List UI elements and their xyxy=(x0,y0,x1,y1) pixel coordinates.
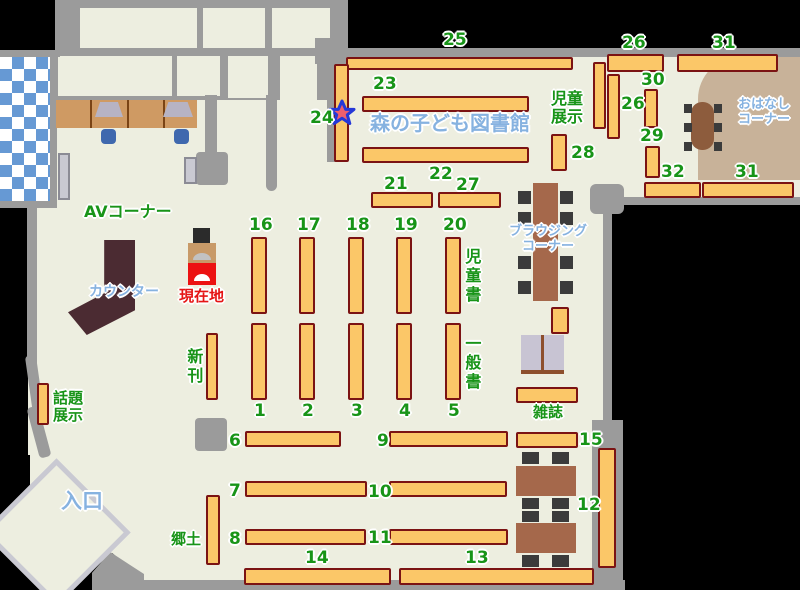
wall-pillar xyxy=(195,418,227,451)
entrance-label: 入口 xyxy=(61,489,103,513)
shelf-label-22: 22 xyxy=(429,166,453,183)
story-line1: おはなし xyxy=(733,98,795,113)
counter-label: カウンター xyxy=(89,284,159,300)
chair xyxy=(522,452,539,464)
wall-left xyxy=(27,203,37,363)
shelf-26-vertical xyxy=(593,62,606,129)
shelf-label-13: 13 xyxy=(465,550,489,567)
shelf-label-12: 12 xyxy=(577,497,601,514)
chair xyxy=(522,511,539,522)
local-history-label: 郷土 xyxy=(171,531,201,548)
wall-checker-right xyxy=(50,57,57,203)
shelf-30 xyxy=(644,89,658,128)
shelf-label-18: 18 xyxy=(346,217,370,234)
kiosk-slot xyxy=(194,274,210,281)
chair xyxy=(518,256,531,269)
shelf-14 xyxy=(244,568,391,585)
shelf-label-3: 3 xyxy=(351,403,363,420)
chair xyxy=(714,142,722,151)
chair xyxy=(518,281,531,294)
shelf-7 xyxy=(245,481,367,497)
kiosk-slot xyxy=(193,253,211,260)
chair xyxy=(560,256,573,269)
new-books-shelf xyxy=(206,333,218,400)
shelf-9 xyxy=(389,431,508,447)
shelf-label-4: 4 xyxy=(399,403,411,420)
magazines-label: 雑誌 xyxy=(533,404,563,421)
chair xyxy=(552,498,569,509)
av-desk-divider xyxy=(90,100,92,128)
shelf-6 xyxy=(245,431,341,447)
shelf-label-32: 32 xyxy=(661,164,685,181)
children-display-line2: 展示 xyxy=(551,108,583,126)
chair xyxy=(714,123,722,132)
wall-top-left xyxy=(0,50,60,57)
wall-children-bottom xyxy=(610,197,800,205)
shelf-5 xyxy=(445,323,461,400)
browsing-line2: コーナー xyxy=(503,240,593,255)
room-opening xyxy=(280,56,317,100)
browsing-corner-label: ブラウジング コーナー xyxy=(503,225,593,255)
shelf-label-23: 23 xyxy=(373,76,397,93)
wall-pillar xyxy=(196,152,228,185)
room xyxy=(228,56,268,98)
room xyxy=(177,56,220,96)
topic-display-label: 話題 展示 xyxy=(53,390,83,425)
shelf-19 xyxy=(396,237,412,314)
shelf-21 xyxy=(371,192,433,208)
shelf-31-top xyxy=(677,54,778,72)
shelf-2 xyxy=(299,323,315,400)
general-books-label: 一般書 xyxy=(462,335,480,392)
shelf-1 xyxy=(251,323,267,400)
newspaper-rack-divider xyxy=(541,335,544,374)
chair xyxy=(552,555,569,567)
room xyxy=(80,8,197,48)
wall-stub xyxy=(205,95,217,157)
new-books-label: 新刊 xyxy=(184,348,202,386)
shelf-label-25: 25 xyxy=(443,32,467,49)
shelf-label-21: 21 xyxy=(384,176,408,193)
shelf-23 xyxy=(362,96,529,112)
shelf-17 xyxy=(299,237,315,314)
shelf-label-17: 17 xyxy=(297,217,321,234)
shelf-28 xyxy=(551,134,567,171)
shelf-label-28: 28 xyxy=(571,145,595,162)
shelf-label-6: 6 xyxy=(229,433,241,450)
shelf-16 xyxy=(251,237,267,314)
door xyxy=(184,157,197,184)
shelf-18 xyxy=(348,237,364,314)
shelf-label-31-side: 31 xyxy=(735,164,759,181)
reading-table xyxy=(516,466,576,496)
wall-post xyxy=(315,38,348,64)
shelf-label-30: 30 xyxy=(641,72,665,89)
shelf-26-vertical xyxy=(607,74,620,139)
shelf-13 xyxy=(399,568,594,585)
checkered-entry-mat xyxy=(0,57,50,203)
shelf-label-1: 1 xyxy=(254,403,266,420)
shelf-label-5: 5 xyxy=(448,403,460,420)
shelf-label-9: 9 xyxy=(377,433,389,450)
shelf-31-bottom xyxy=(702,182,794,198)
chair xyxy=(101,129,116,144)
current-location-label: 現在地 xyxy=(179,289,224,304)
library-floor-map: 25 23 24 22 21 27 26 31 26 30 29 28 32 3… xyxy=(0,0,800,590)
story-table xyxy=(691,102,714,150)
story-corner-label: おはなし コーナー xyxy=(733,98,795,128)
room xyxy=(58,56,172,96)
shelf-label-16: 16 xyxy=(249,217,273,234)
shelf-label-2: 2 xyxy=(302,403,314,420)
chair xyxy=(552,511,569,522)
kiosk-top xyxy=(193,228,210,243)
story-line2: コーナー xyxy=(733,113,795,128)
chair xyxy=(684,142,692,151)
shelf-4 xyxy=(396,323,412,400)
shelf-label-14: 14 xyxy=(305,550,329,567)
wall-right xyxy=(603,205,612,425)
shelf-15 xyxy=(516,432,578,448)
topic-display-line1: 話題 xyxy=(53,390,83,407)
children-books-label: 児童書 xyxy=(462,248,480,305)
shelf-label-15: 15 xyxy=(579,432,603,449)
shelf-label-31-top: 31 xyxy=(712,35,736,52)
chair xyxy=(522,498,539,509)
browsing-line1: ブラウジング xyxy=(503,225,593,240)
shelf-label-29: 29 xyxy=(640,128,664,145)
shelf-10 xyxy=(389,481,507,497)
chair xyxy=(552,452,569,464)
shelf-3 xyxy=(348,323,364,400)
children-display-line1: 児童 xyxy=(551,90,583,108)
chair xyxy=(174,129,189,144)
shelf-22 xyxy=(362,147,529,163)
chair xyxy=(684,123,692,132)
reading-table xyxy=(516,523,576,553)
library-title: 森の子ども図書館 xyxy=(370,112,530,135)
shelf-label-19: 19 xyxy=(394,217,418,234)
shelf-label-11: 11 xyxy=(368,530,392,547)
shelf-label-27: 27 xyxy=(456,177,480,194)
shelf-20 xyxy=(445,237,461,314)
shelf-label-10: 10 xyxy=(368,484,392,501)
shelf-8 xyxy=(245,529,366,545)
local-history-shelf xyxy=(206,495,220,565)
shelf-29 xyxy=(645,146,660,178)
topic-display-shelf xyxy=(37,383,49,425)
topic-display-line2: 展示 xyxy=(53,407,83,424)
shelf-25 xyxy=(346,57,573,70)
shelf-label-26-top: 26 xyxy=(622,35,646,52)
chair xyxy=(714,104,722,113)
chair xyxy=(560,281,573,294)
children-display-label: 児童 展示 xyxy=(551,90,583,127)
pamphlet-shelf xyxy=(551,307,569,334)
chair xyxy=(684,104,692,113)
chair xyxy=(522,555,539,567)
av-desk-divider xyxy=(127,100,129,128)
shelf-32 xyxy=(644,182,701,198)
magazine-shelf xyxy=(516,387,578,403)
room xyxy=(203,8,265,48)
chair xyxy=(560,191,573,204)
shelf-label-7: 7 xyxy=(229,483,241,500)
av-corner-label: AVコーナー xyxy=(84,203,172,221)
wall-stub xyxy=(266,95,277,191)
shelf-11 xyxy=(389,529,508,545)
shelf-label-8: 8 xyxy=(229,531,241,548)
shelf-label-20: 20 xyxy=(443,217,467,234)
shelf-label-26-side: 26 xyxy=(621,96,645,113)
door xyxy=(58,153,70,200)
chair xyxy=(518,191,531,204)
shelf-label-24: 24 xyxy=(310,110,334,127)
